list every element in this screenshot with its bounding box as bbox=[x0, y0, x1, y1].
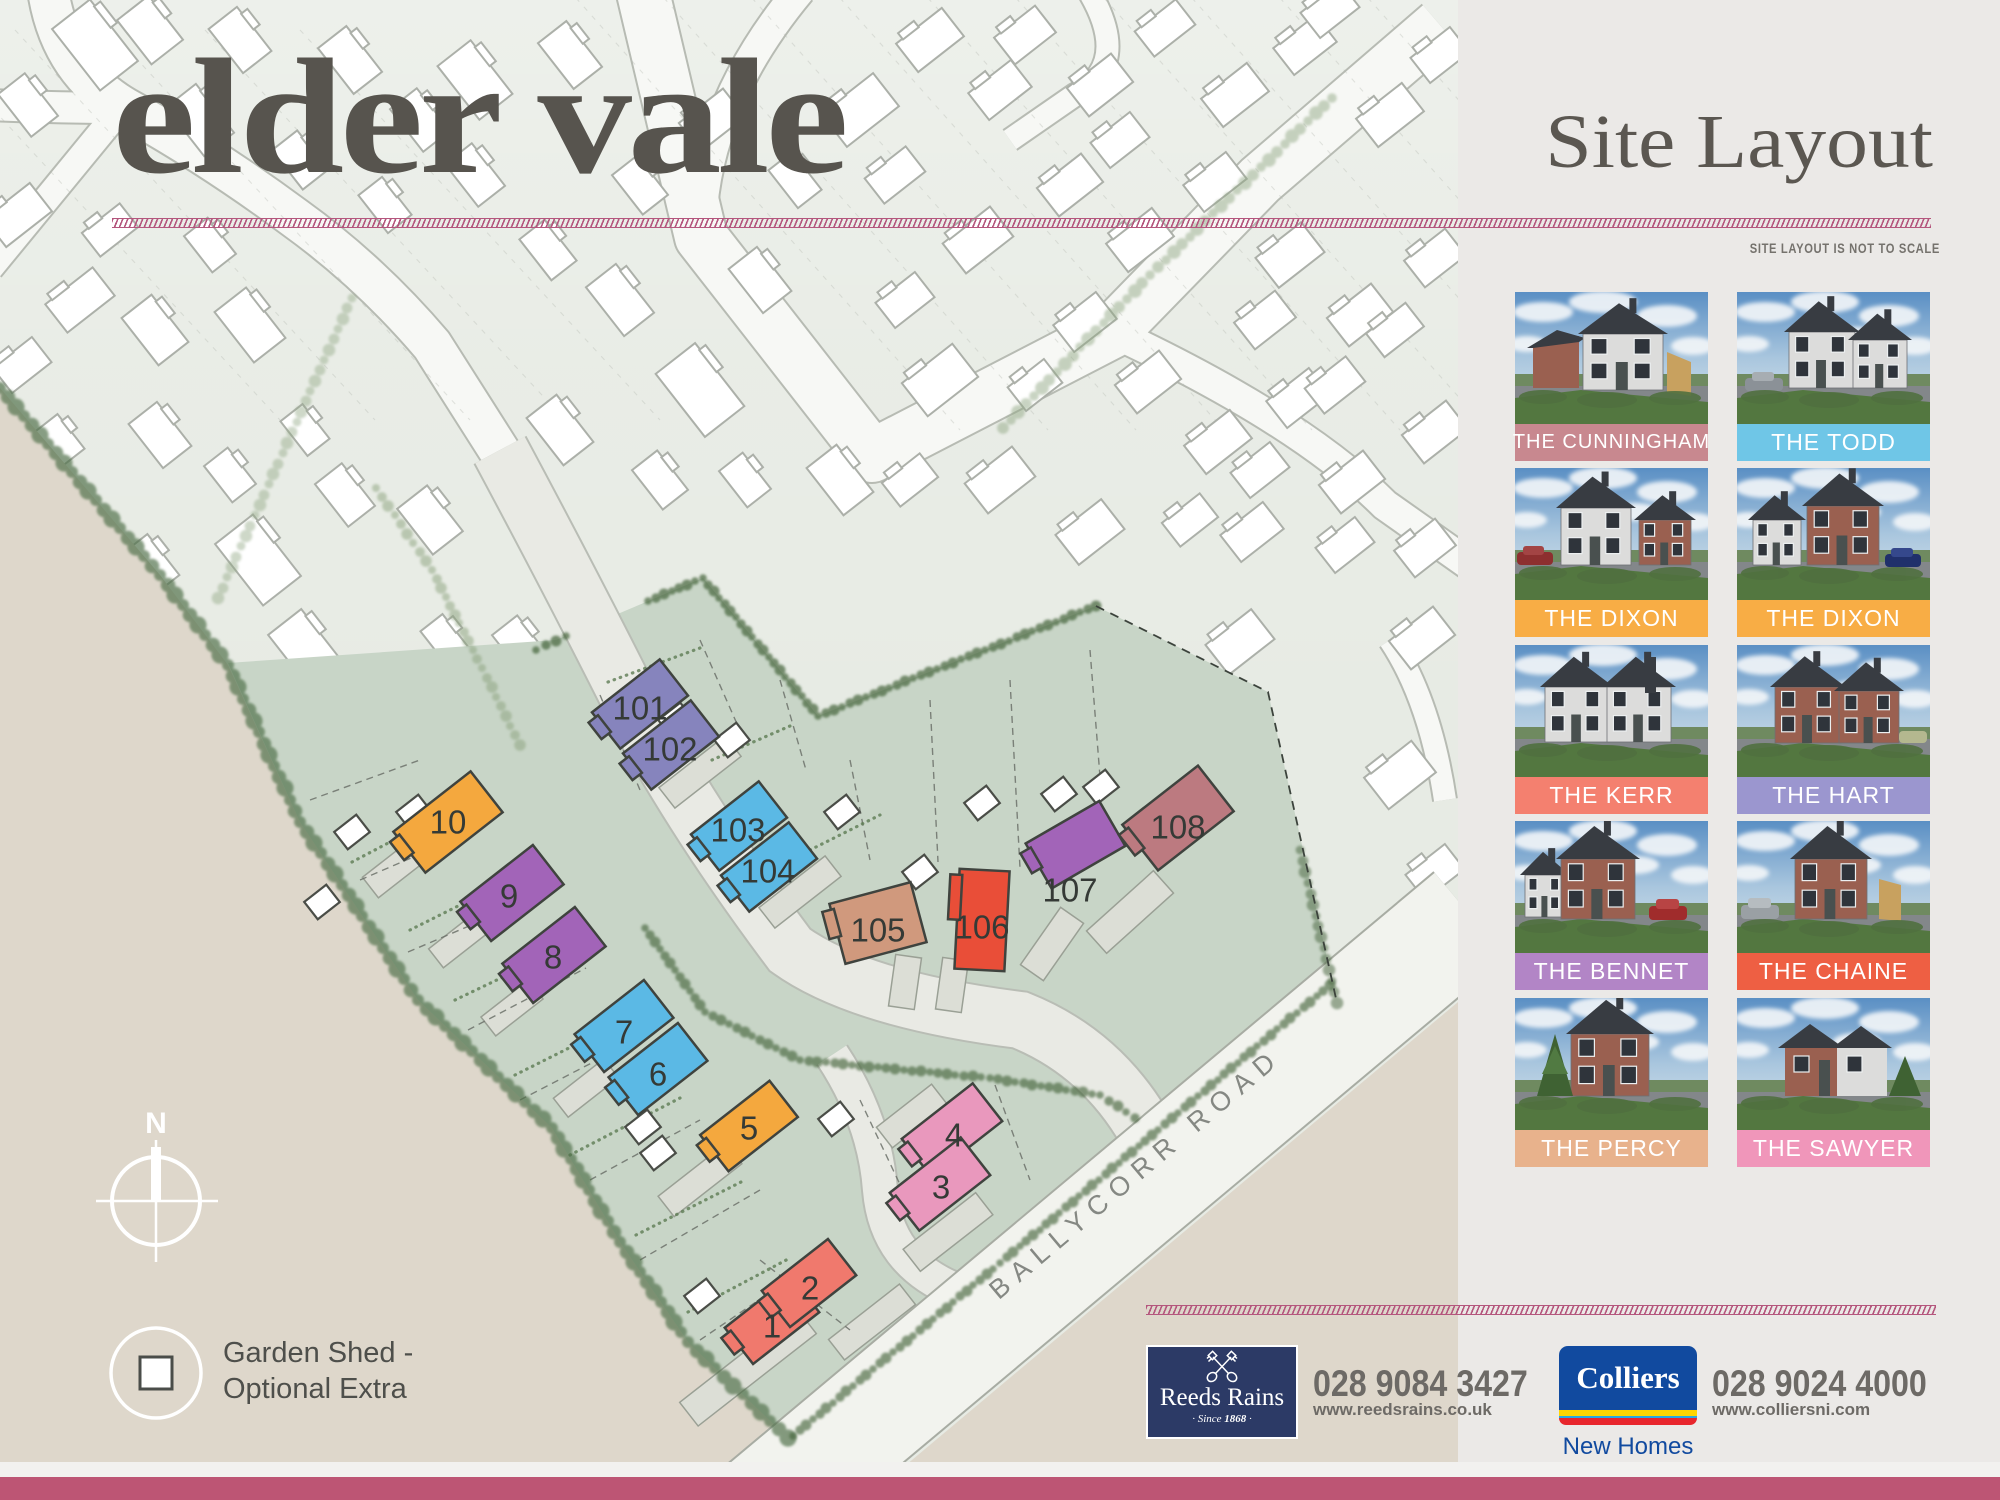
svg-text:107: 107 bbox=[1042, 872, 1097, 909]
svg-text:7: 7 bbox=[615, 1014, 633, 1051]
svg-text:10: 10 bbox=[430, 804, 467, 841]
svg-text:2: 2 bbox=[801, 1270, 819, 1307]
svg-text:6: 6 bbox=[649, 1056, 667, 1093]
svg-text:1: 1 bbox=[763, 1308, 781, 1345]
svg-text:104: 104 bbox=[740, 853, 795, 890]
svg-text:9: 9 bbox=[500, 878, 518, 915]
svg-text:Optional Extra: Optional Extra bbox=[223, 1373, 408, 1405]
svg-text:108: 108 bbox=[1150, 809, 1205, 846]
svg-text:4: 4 bbox=[945, 1117, 963, 1154]
svg-text:5: 5 bbox=[740, 1110, 758, 1147]
svg-text:8: 8 bbox=[544, 939, 562, 976]
svg-text:102: 102 bbox=[642, 731, 697, 768]
svg-text:Garden Shed -: Garden Shed - bbox=[223, 1337, 413, 1369]
svg-text:106: 106 bbox=[954, 909, 1009, 946]
svg-text:101: 101 bbox=[612, 690, 667, 727]
svg-text:3: 3 bbox=[932, 1169, 950, 1206]
svg-text:N: N bbox=[145, 1107, 167, 1140]
svg-text:103: 103 bbox=[710, 812, 765, 849]
svg-text:105: 105 bbox=[850, 912, 905, 949]
